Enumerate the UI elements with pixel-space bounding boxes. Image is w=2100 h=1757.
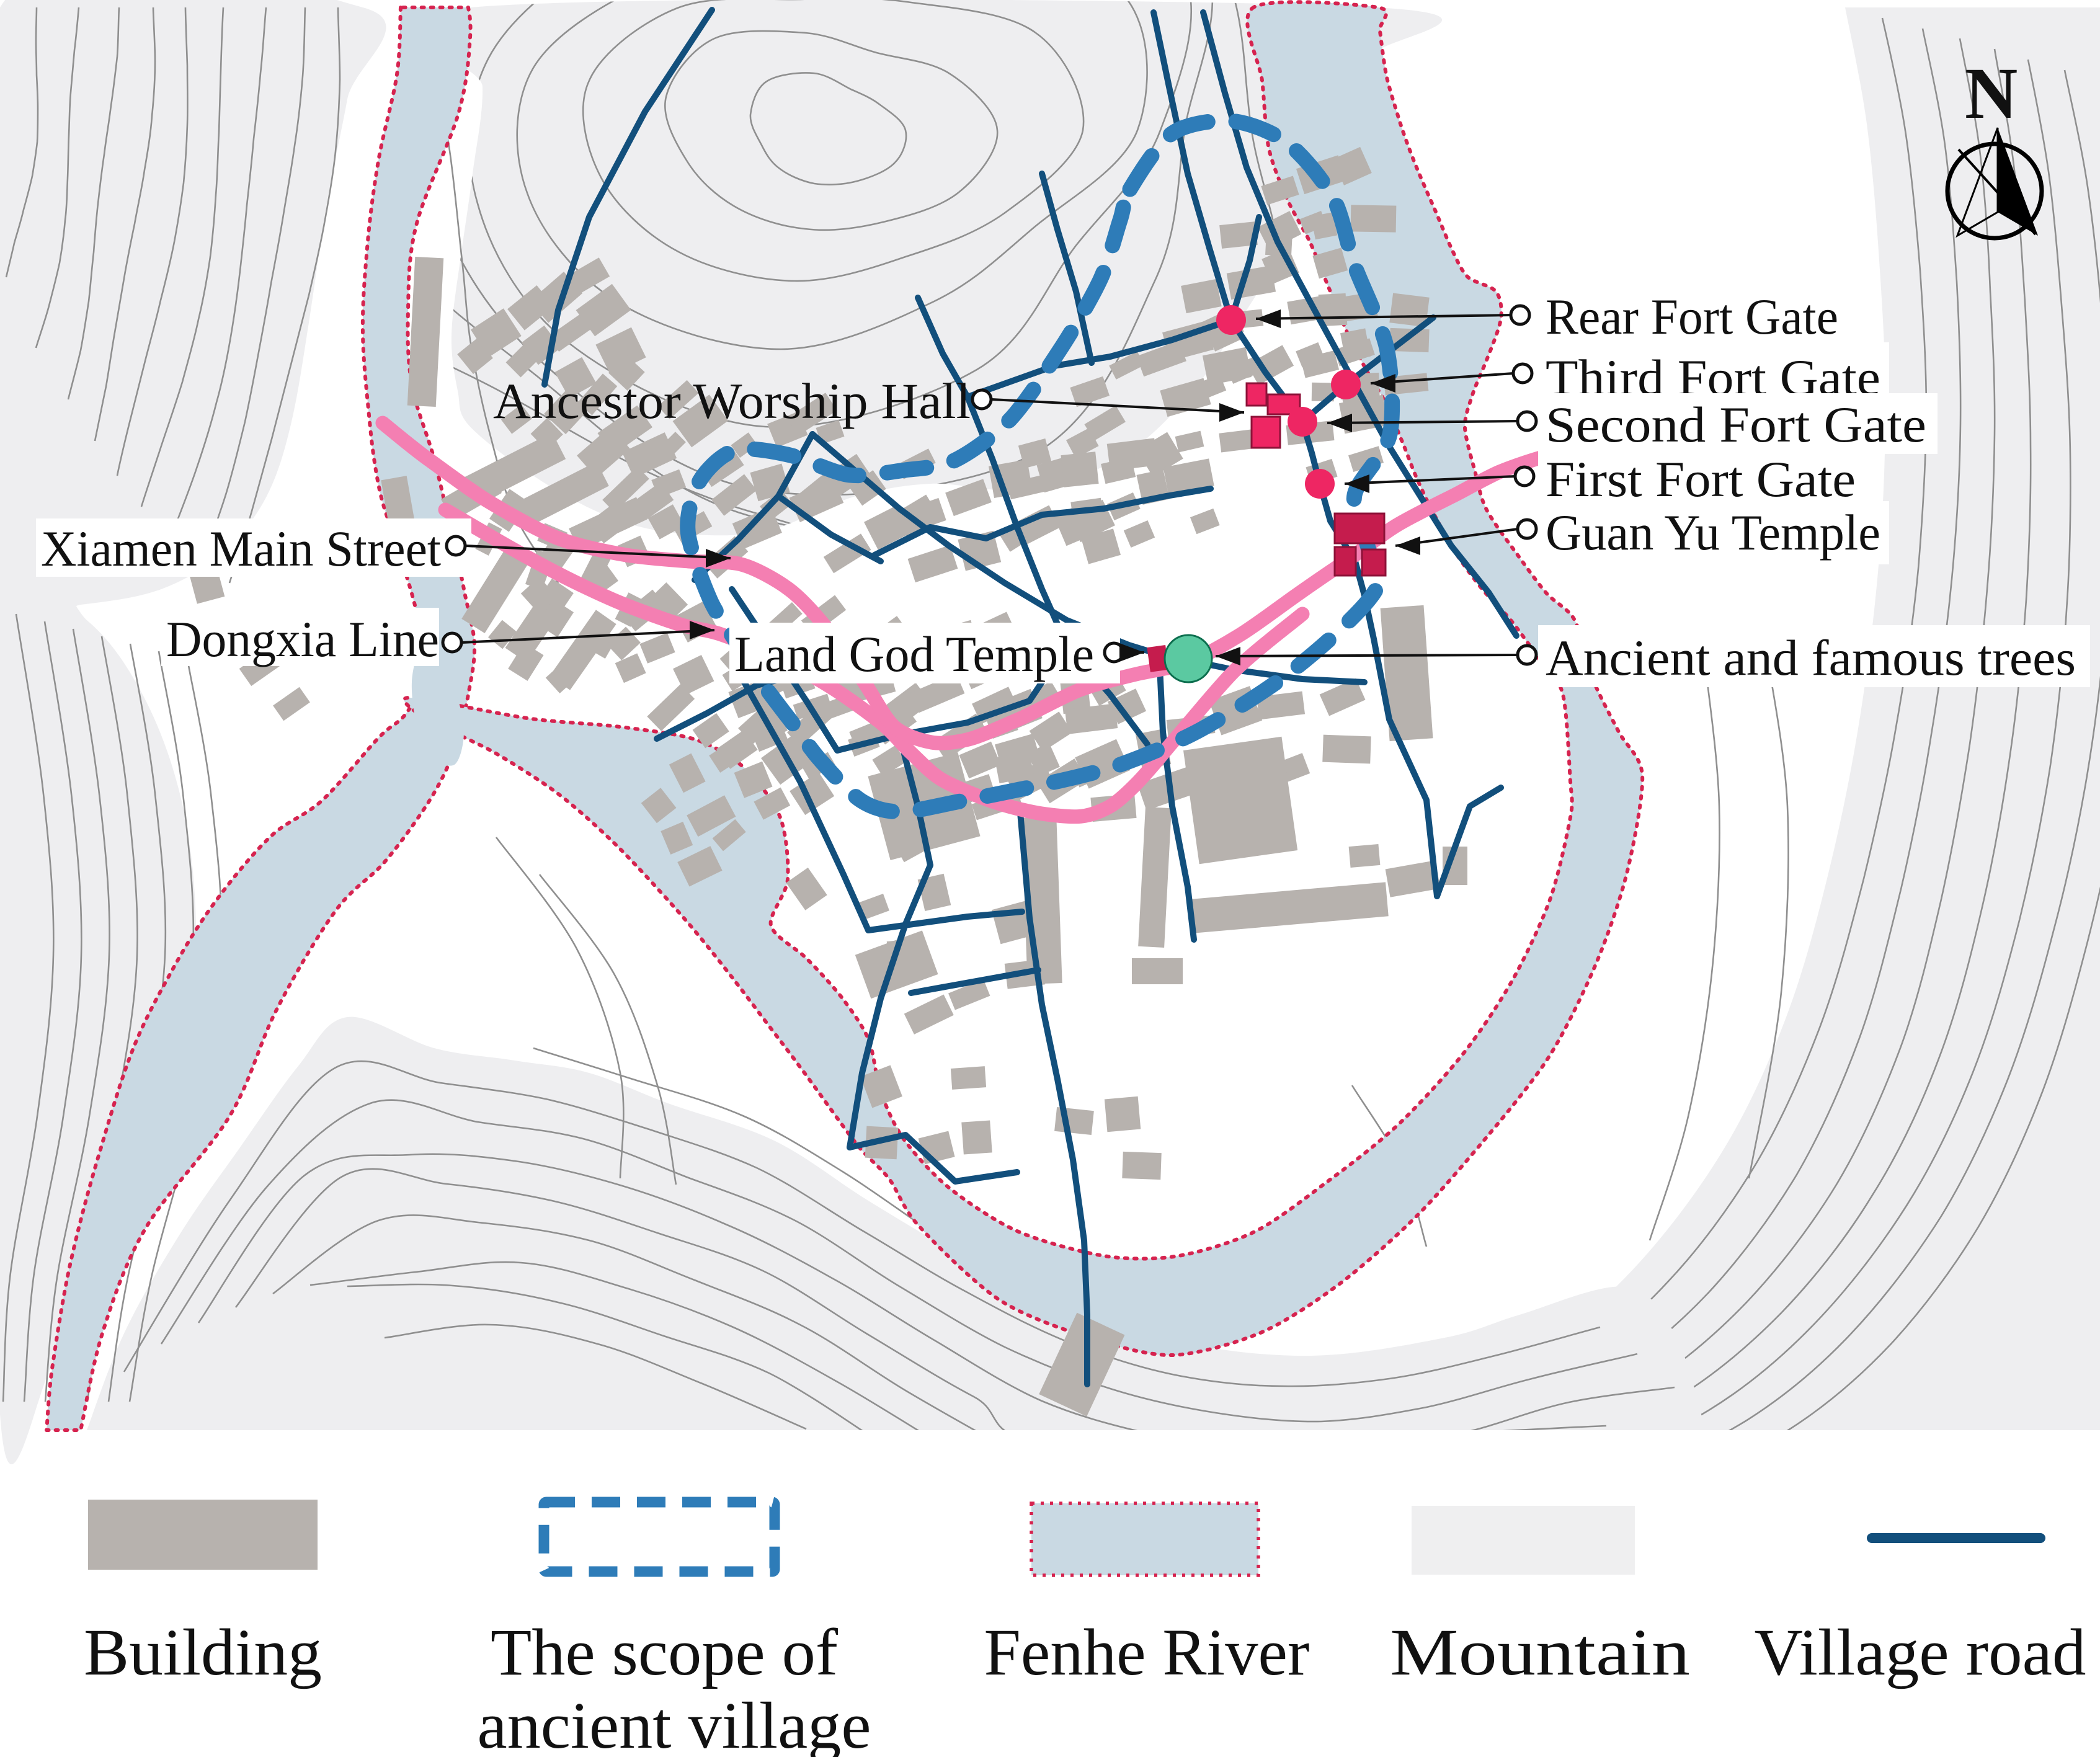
svg-text:Fenhe River: Fenhe River — [984, 1616, 1310, 1689]
svg-text:ancient village: ancient village — [478, 1689, 871, 1757]
svg-text:Mountain: Mountain — [1390, 1616, 1690, 1689]
svg-text:Guan Yu Temple: Guan Yu Temple — [1546, 504, 1880, 561]
svg-text:Ancestor Worship Hall: Ancestor Worship Hall — [493, 373, 971, 429]
svg-text:Dongxia Line: Dongxia Line — [166, 611, 439, 667]
svg-text:Ancient and famous trees: Ancient and famous trees — [1546, 629, 2076, 686]
svg-text:N: N — [1965, 53, 2018, 134]
svg-text:Second Fort Gate: Second Fort Gate — [1546, 396, 1926, 453]
svg-text:Building: Building — [84, 1616, 322, 1689]
svg-text:Rear Fort Gate: Rear Fort Gate — [1546, 288, 1838, 345]
svg-text:Land God Temple: Land God Temple — [734, 626, 1094, 682]
svg-text:First Fort Gate: First Fort Gate — [1546, 451, 1856, 507]
svg-text:The scope of: The scope of — [491, 1616, 838, 1689]
svg-text:Xiamen Main Street: Xiamen Main Street — [41, 520, 441, 577]
svg-text:Village road: Village road — [1755, 1616, 2086, 1689]
